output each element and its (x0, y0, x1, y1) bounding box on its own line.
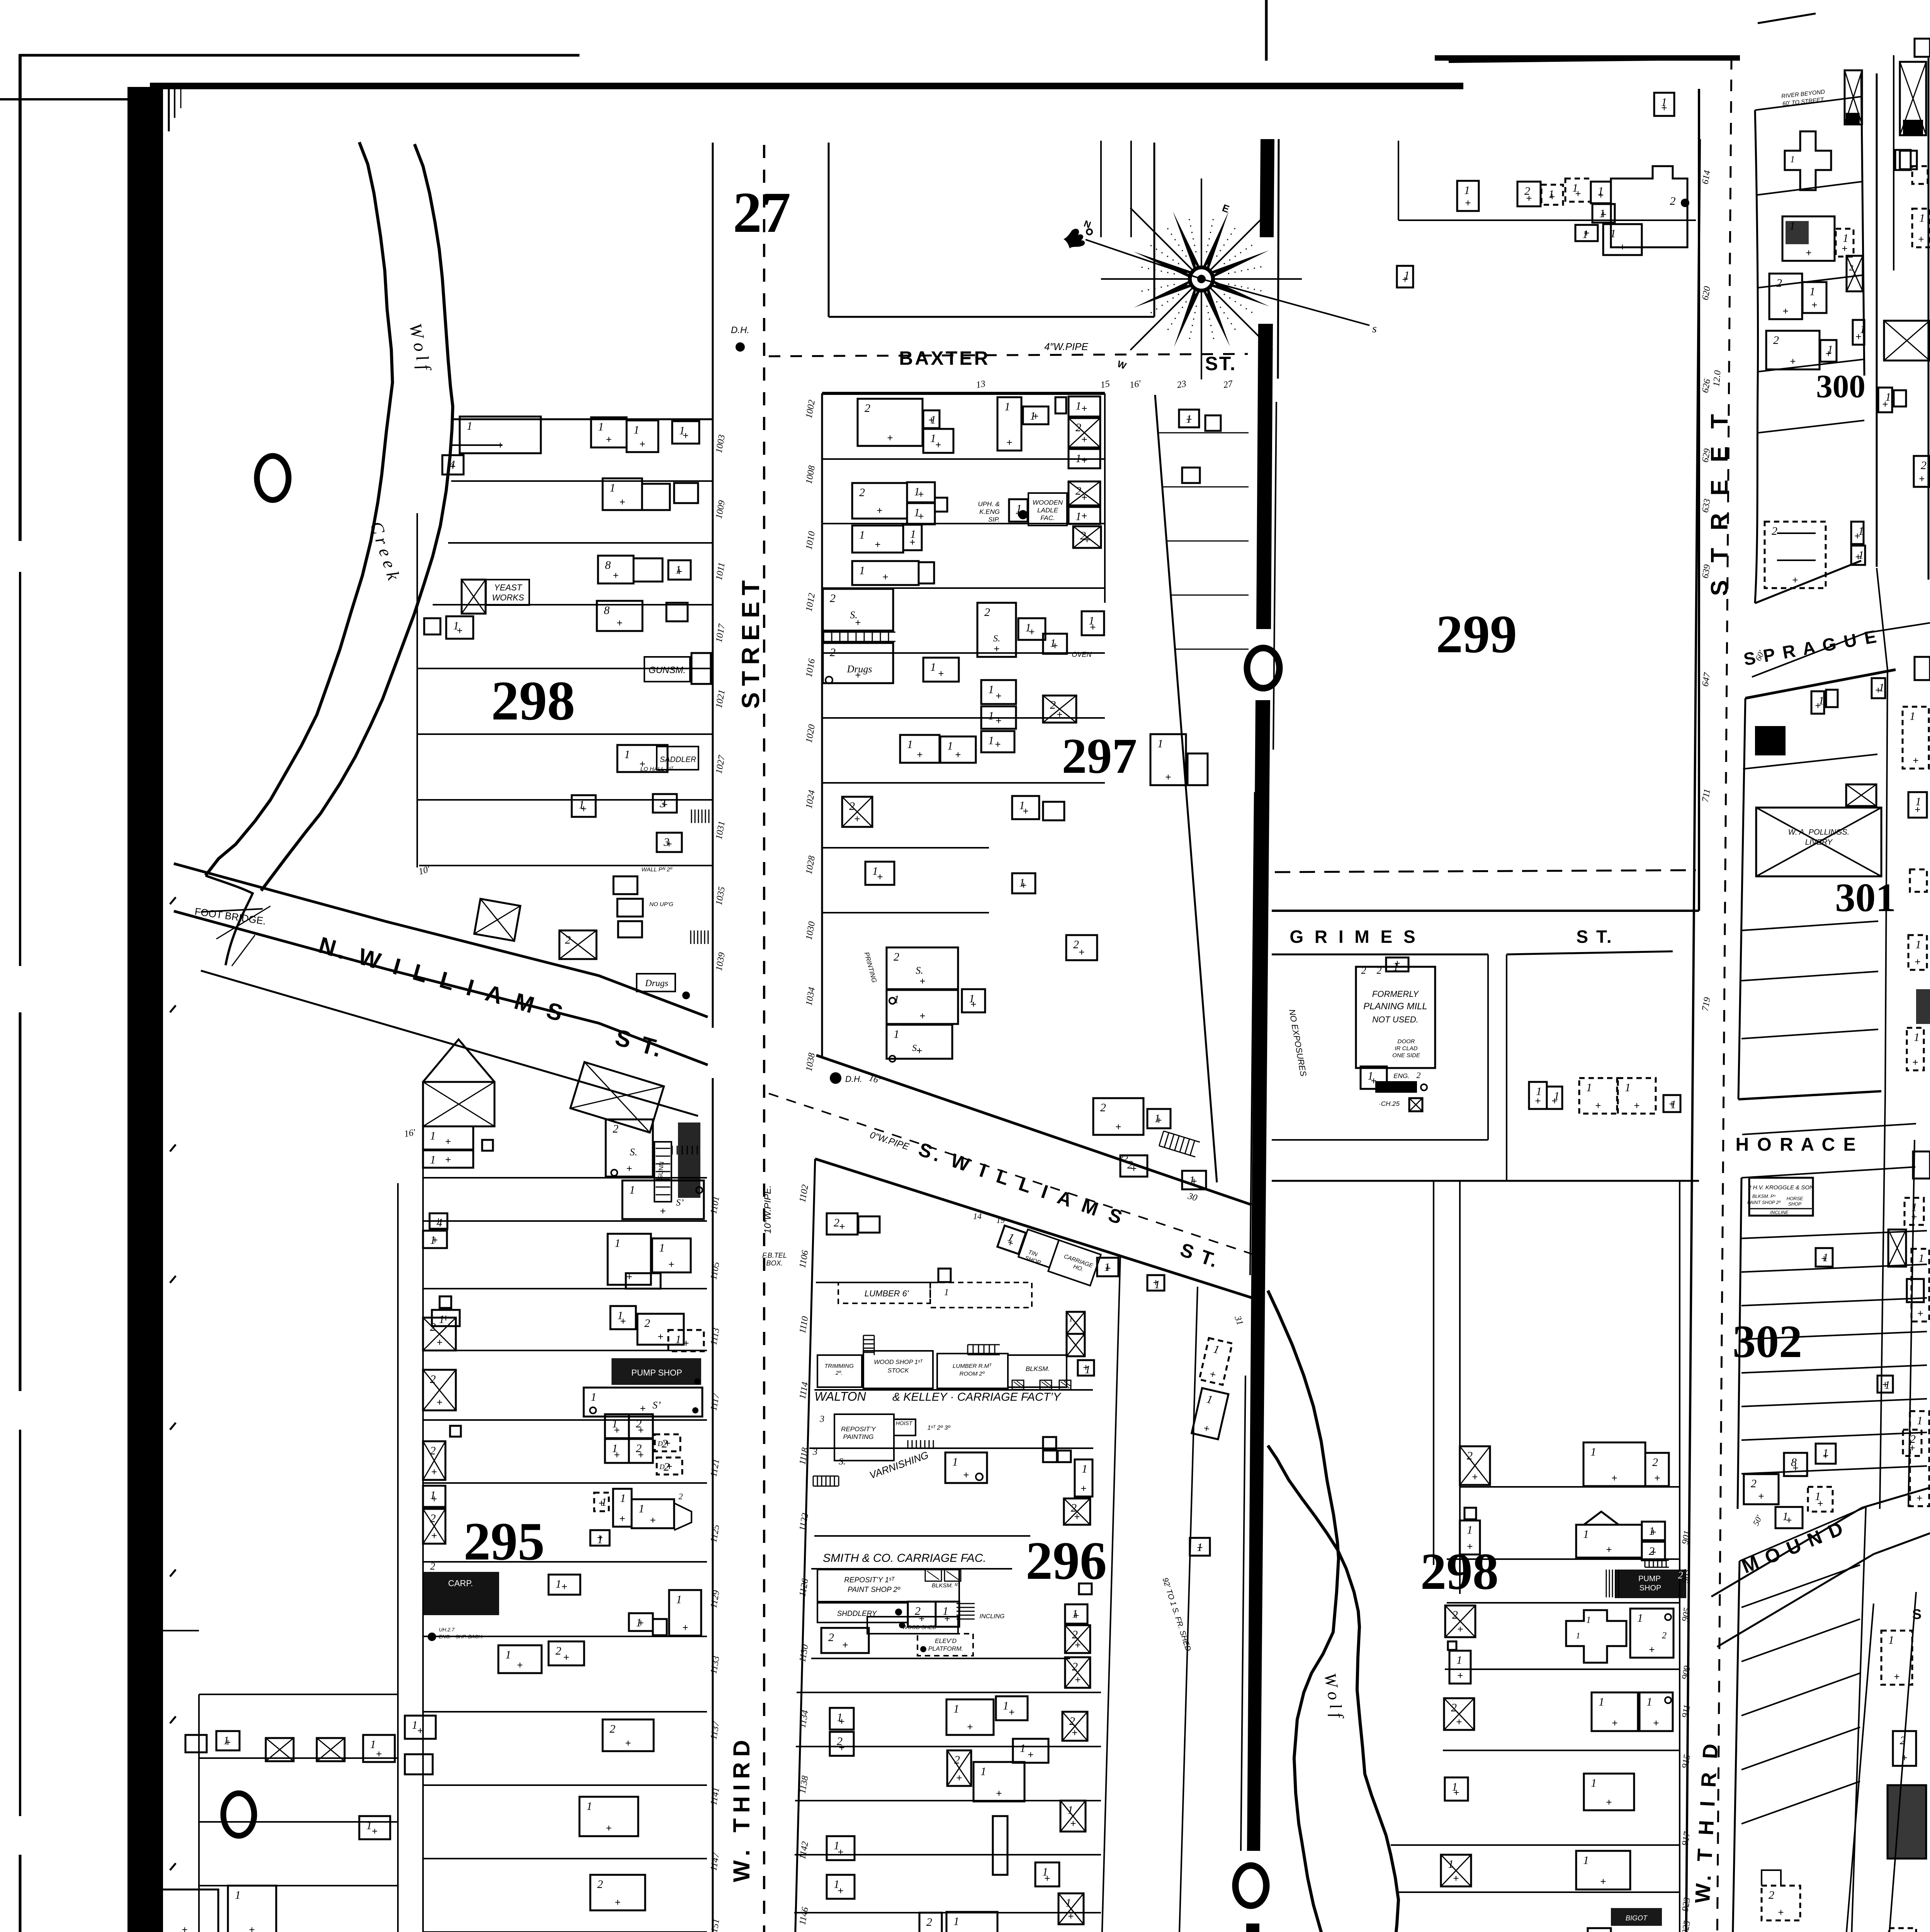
svg-text:15: 15 (1100, 379, 1111, 390)
svg-text:1: 1 (988, 683, 994, 696)
svg-text:+: + (662, 799, 668, 810)
svg-text:+: + (1600, 1876, 1606, 1887)
svg-text:+: + (1081, 403, 1087, 414)
svg-text:2: 2 (984, 606, 990, 619)
svg-text:S.: S. (916, 965, 923, 976)
svg-text:W. THIRD: W. THIRD (729, 1735, 754, 1882)
svg-text:1: 1 (1157, 737, 1163, 750)
svg-text:+: + (376, 1748, 382, 1760)
svg-text:1: 1 (1583, 1528, 1589, 1541)
svg-text:+: + (1197, 1542, 1203, 1553)
svg-text:2: 2 (1670, 195, 1676, 207)
svg-text:& KELLEY · CARRIAGE FACT’Y: & KELLEY · CARRIAGE FACT’Y (892, 1391, 1062, 1403)
svg-text:+: + (1619, 241, 1625, 253)
svg-text:2 H.V. KROGGLE & SON: 2 H.V. KROGGLE & SON (1748, 1184, 1814, 1191)
svg-text:+: + (614, 1449, 620, 1461)
svg-text:+: + (1855, 551, 1861, 563)
svg-text:+: + (1915, 956, 1920, 968)
svg-text:297: 297 (1062, 728, 1137, 784)
svg-text:1: 1 (1467, 1524, 1473, 1536)
svg-text:+: + (1465, 197, 1471, 209)
svg-text:+: + (1083, 1362, 1089, 1373)
svg-text:+: + (1535, 1095, 1541, 1107)
svg-text:1: 1 (1003, 1699, 1009, 1712)
svg-text:+: + (625, 1737, 631, 1749)
svg-text:+: + (1081, 510, 1087, 522)
svg-text:1: 1 (1914, 1031, 1920, 1044)
svg-text:+: + (1917, 1308, 1923, 1319)
svg-text:1: 1 (1590, 1446, 1596, 1458)
svg-text:1: 1 (1910, 710, 1915, 723)
svg-text:UPH. &: UPH. & (978, 500, 1000, 508)
svg-text:+: + (996, 1787, 1002, 1799)
svg-text:+: + (598, 1497, 604, 1509)
svg-text:+: + (639, 438, 645, 450)
svg-text:+: + (650, 1514, 656, 1526)
svg-text:2: 2 (1772, 525, 1777, 537)
svg-text:+: + (875, 539, 880, 550)
svg-text:2: 2 (1662, 1631, 1667, 1641)
svg-text:1: 1 (598, 420, 604, 433)
svg-text:1: 1 (1082, 1463, 1087, 1475)
svg-text:1: 1 (615, 1237, 620, 1250)
svg-text:3: 3 (812, 1447, 817, 1457)
svg-text:16': 16' (1129, 379, 1142, 391)
svg-text:WOOD SHOP 1ˢᵀ: WOOD SHOP 1ˢᵀ (874, 1359, 923, 1366)
svg-text:+: + (1156, 1114, 1162, 1126)
svg-text:K.ENG: K.ENG (979, 508, 1000, 515)
svg-text:+: + (638, 1617, 644, 1629)
svg-text:2: 2 (1069, 1715, 1075, 1728)
svg-text:+: + (1191, 1175, 1197, 1187)
svg-text:+: + (1901, 1752, 1907, 1764)
svg-text:REPOSIT’Y 1ˢᵀ: REPOSIT’Y 1ˢᵀ (844, 1576, 895, 1584)
svg-text:ROOM 2º: ROOM 2º (960, 1371, 985, 1377)
svg-text:S.: S. (993, 634, 1000, 644)
svg-text:2: 2 (430, 1373, 436, 1386)
svg-text:1: 1 (1020, 1742, 1026, 1755)
svg-text:1: 1 (1809, 285, 1815, 298)
svg-text:+: + (615, 1896, 620, 1908)
svg-text:+: + (839, 1221, 845, 1232)
svg-text:1: 1 (556, 1578, 561, 1590)
svg-text:+: + (1778, 1906, 1784, 1918)
svg-text:1: 1 (859, 564, 865, 577)
svg-text:2: 2 (828, 1631, 834, 1644)
svg-text:+: + (1072, 1727, 1077, 1738)
svg-text:+: + (1595, 1100, 1601, 1111)
svg-text:1ˢᵀ 2º 3º: 1ˢᵀ 2º 3º (928, 1425, 951, 1431)
svg-text:+: + (1402, 274, 1408, 285)
svg-text:12.0: 12.0 (1711, 370, 1723, 387)
svg-text:2: 2 (865, 402, 870, 415)
svg-text:2: 2 (1050, 699, 1056, 711)
svg-text:1: 1 (1586, 1081, 1592, 1094)
svg-text:BIGOT: BIGOT (1626, 1914, 1648, 1922)
svg-text:CARP.: CARP. (448, 1578, 473, 1588)
svg-text:+: + (919, 1613, 924, 1624)
svg-text:+: + (1815, 700, 1821, 711)
svg-text:UH.2.7: UH.2.7 (439, 1627, 455, 1633)
svg-text:1: 1 (676, 1593, 682, 1606)
svg-text:+: + (1131, 1163, 1137, 1174)
svg-text:2: 2 (830, 646, 836, 659)
svg-text:27: 27 (733, 180, 791, 245)
svg-text:+: + (935, 439, 941, 451)
svg-text:1: 1 (1464, 184, 1470, 197)
svg-text:YEAST: YEAST (494, 583, 523, 592)
svg-text:+: + (1467, 1541, 1473, 1552)
svg-text:LIVERY: LIVERY (1805, 838, 1833, 847)
svg-text:1: 1 (1065, 1896, 1071, 1909)
svg-text:1: 1 (930, 661, 936, 673)
svg-text:+: + (417, 1725, 423, 1736)
svg-text:8: 8 (604, 604, 610, 617)
svg-text:+: + (1842, 243, 1847, 254)
svg-text:1: 1 (1888, 1634, 1894, 1646)
svg-text:S T.: S T. (1576, 927, 1613, 947)
svg-text:W. A. POLLINGS.: W. A. POLLINGS. (1788, 828, 1850, 837)
svg-text:+: + (838, 1885, 843, 1896)
svg-text:+: + (1611, 1472, 1617, 1484)
svg-text:ONE SIDE: ONE SIDE (1392, 1052, 1420, 1059)
svg-text:OVEN: OVEN (1072, 651, 1092, 658)
svg-text:3: 3 (819, 1414, 824, 1424)
svg-text:13: 13 (975, 379, 986, 390)
svg-text:PAINT SHOP 2º: PAINT SHOP 2º (848, 1586, 900, 1594)
svg-text:HORSE: HORSE (1787, 1196, 1804, 1201)
svg-text:1: 1 (1915, 938, 1921, 951)
svg-text:+: + (938, 668, 944, 679)
svg-text:1: 1 (907, 738, 913, 751)
svg-text:BLKSM. ᴺᵀ: BLKSM. ᴺᵀ (932, 1582, 960, 1589)
svg-text:+: + (1782, 305, 1788, 317)
svg-text:2: 2 (859, 486, 865, 499)
svg-text:1: 1 (980, 1765, 986, 1778)
svg-text:1: 1 (1586, 1615, 1591, 1625)
svg-text:+: + (1081, 434, 1087, 445)
svg-text:ELEV’D: ELEV’D (935, 1638, 957, 1645)
svg-text:+: + (1526, 192, 1532, 204)
svg-text:2: 2 (430, 1321, 436, 1333)
svg-text:+: + (963, 1469, 969, 1481)
svg-text:+: + (1457, 1670, 1463, 1681)
svg-text:2: 2 (1652, 1456, 1658, 1469)
svg-text:+: + (619, 1513, 625, 1524)
svg-text:+: + (1606, 1796, 1612, 1808)
svg-text:1: 1 (1576, 1631, 1580, 1640)
svg-text:2: 2 (1776, 277, 1782, 289)
svg-text:LUMBER 6': LUMBER 6' (865, 1289, 909, 1298)
svg-text:G R I M E S: G R I M E S (1289, 927, 1418, 947)
svg-text:+: + (1186, 413, 1192, 425)
svg-text:+: + (561, 1581, 567, 1592)
svg-text:1: 1 (988, 734, 994, 747)
svg-text:+: + (1821, 1253, 1827, 1264)
svg-text:+: + (450, 461, 455, 472)
svg-text:+: + (445, 1136, 451, 1147)
svg-text:+: + (1073, 1610, 1079, 1621)
svg-text:1: 1 (505, 1648, 511, 1661)
svg-text:1: 1 (366, 1819, 372, 1832)
svg-text:+: + (917, 749, 923, 760)
svg-text:+: + (497, 439, 503, 451)
svg-text:PUMP: PUMP (1638, 1575, 1661, 1583)
svg-text:1: 1 (624, 748, 630, 761)
svg-text:2: 2 (1451, 1701, 1457, 1714)
svg-text:1: 1 (1004, 400, 1010, 413)
svg-text:+: + (1612, 1717, 1617, 1729)
svg-text:+: + (626, 1163, 632, 1174)
svg-text:+: + (1634, 1100, 1639, 1111)
svg-text:1: 1 (944, 1287, 949, 1298)
svg-text:S’: S’ (676, 1198, 684, 1208)
svg-text:14: 14 (973, 1211, 982, 1221)
svg-text:+: + (640, 1403, 646, 1414)
svg-text:+: + (1650, 1546, 1656, 1558)
svg-text:FAC.: FAC. (1040, 514, 1055, 522)
svg-text:+: + (1394, 957, 1400, 969)
svg-text:2: 2 (430, 1512, 436, 1525)
svg-text:1: 1 (675, 1333, 681, 1346)
svg-text:1: 1 (1625, 1081, 1631, 1094)
svg-text:296: 296 (1026, 1531, 1107, 1591)
svg-text:1: 1 (1456, 1654, 1462, 1667)
svg-text:+: + (1894, 1671, 1899, 1682)
svg-text:+: + (1044, 1872, 1050, 1884)
svg-text:+: + (1009, 1706, 1014, 1718)
svg-text:SMITH & CO. CARRIAGE FAC.: SMITH & CO. CARRIAGE FAC. (823, 1552, 986, 1565)
svg-text:+: + (1825, 348, 1831, 359)
svg-text:+: + (970, 998, 976, 1010)
svg-text:2: 2 (1073, 938, 1079, 951)
svg-text:+: + (638, 1424, 644, 1436)
svg-text:+: + (1070, 1818, 1076, 1829)
svg-text:+: + (842, 1639, 848, 1651)
svg-text:2: 2 (613, 1122, 618, 1135)
svg-text:+: + (919, 975, 925, 987)
svg-text:LADLE: LADLE (1037, 507, 1058, 514)
svg-text:D.H.: D.H. (845, 1074, 862, 1084)
svg-text:1: 1 (859, 529, 865, 541)
svg-text:+: + (457, 625, 462, 636)
svg-text:+: + (918, 510, 924, 522)
svg-text:WOOD SHED: WOOD SHED (902, 1624, 936, 1630)
svg-text:+: + (1882, 1379, 1888, 1390)
svg-text:·CH.25: ·CH.25 (1379, 1100, 1400, 1107)
svg-text:STOCK: STOCK (888, 1367, 909, 1374)
svg-text:2: 2 (1849, 263, 1854, 272)
svg-text:+: + (1790, 355, 1796, 367)
svg-text:1: 1 (1610, 227, 1616, 240)
svg-text:1: 1 (1448, 1858, 1454, 1871)
svg-text:+: + (563, 1651, 569, 1663)
svg-text:1: 1 (953, 1915, 959, 1928)
svg-text:+: + (1033, 410, 1038, 422)
svg-text:1: 1 (1646, 1696, 1652, 1708)
svg-text:D.: D. (659, 1463, 666, 1471)
svg-text:1: 1 (947, 740, 953, 752)
svg-text:1: 1 (1069, 1315, 1073, 1323)
svg-text:+: + (1057, 709, 1062, 720)
svg-text:+: + (838, 1846, 843, 1858)
svg-text:BAXTER: BAXTER (899, 347, 990, 369)
svg-text:2: 2 (597, 1878, 603, 1891)
svg-text:2: 2 (565, 934, 571, 946)
svg-text:+: + (1823, 1450, 1828, 1461)
svg-text:WOODEN: WOODEN (1033, 499, 1063, 506)
svg-text:+: + (1606, 1544, 1612, 1555)
svg-text:299: 299 (1436, 604, 1517, 664)
svg-text:+: + (1075, 1639, 1081, 1651)
svg-text:1: 1 (1919, 212, 1925, 224)
svg-text:+: + (996, 690, 1001, 702)
svg-text:S’: S’ (652, 1400, 661, 1411)
svg-text:+: + (431, 1466, 437, 1478)
svg-text:+: + (619, 496, 625, 508)
svg-text:+: + (877, 505, 882, 516)
svg-text:SHOP: SHOP (1639, 1584, 1662, 1592)
svg-text:2: 2 (1361, 965, 1366, 976)
svg-text:1: 1 (158, 1893, 163, 1905)
svg-text:LUMBER R.Mᵀ: LUMBER R.Mᵀ (953, 1363, 992, 1369)
svg-text:+: + (1918, 233, 1924, 245)
svg-text:1: 1 (1790, 155, 1795, 165)
svg-text:+: + (909, 536, 915, 548)
svg-text:8: 8 (605, 559, 611, 571)
svg-text:1: 1 (894, 1028, 899, 1041)
svg-text:GUNSM.: GUNSM. (649, 665, 686, 675)
svg-text:+: + (1029, 626, 1035, 638)
svg-text:+: + (1654, 1472, 1660, 1484)
svg-text:2: 2 (1921, 459, 1927, 472)
svg-text:+: + (1786, 1514, 1792, 1526)
svg-text:F.B.TEL: F.B.TEL (762, 1252, 787, 1259)
svg-text:+: + (617, 617, 622, 629)
svg-text:2: 2 (926, 1916, 932, 1929)
svg-text:+: + (1913, 755, 1918, 766)
svg-text:+: + (1650, 1526, 1656, 1538)
svg-text:+: + (225, 1736, 231, 1748)
svg-text:2: 2 (1900, 1734, 1906, 1747)
svg-text:2: 2 (1072, 1660, 1078, 1673)
svg-text:+: + (1153, 1277, 1159, 1288)
svg-text:+: + (928, 414, 934, 426)
svg-text:1: 1 (1599, 1696, 1604, 1708)
svg-text:+: + (967, 1721, 973, 1733)
svg-text:+: + (668, 1259, 674, 1270)
svg-text:+: + (1028, 1749, 1033, 1760)
svg-text:+: + (657, 1331, 663, 1342)
svg-text:1: 1 (659, 1242, 665, 1254)
svg-text:S: S (1912, 1606, 1922, 1622)
svg-text:+: + (581, 803, 586, 815)
svg-text:+: + (249, 1924, 255, 1932)
svg-text:1: 1 (1075, 510, 1081, 523)
svg-text:WALL Pᴺ 2º: WALL Pᴺ 2º (641, 866, 673, 873)
svg-text:+: + (1081, 1483, 1086, 1494)
svg-text:1: 1 (1075, 452, 1081, 465)
svg-text:2: 2 (679, 1492, 683, 1501)
svg-text:+: + (1052, 640, 1058, 651)
svg-text:+: + (1916, 1492, 1922, 1504)
svg-text:NO UP'G: NO UP'G (649, 901, 673, 908)
svg-text:1: 1 (467, 420, 472, 432)
svg-text:+: + (432, 1234, 438, 1246)
svg-text:+: + (1023, 805, 1028, 817)
svg-text:+: + (431, 1493, 437, 1505)
svg-text:+: + (614, 1424, 620, 1436)
svg-text:S.: S. (630, 1146, 637, 1158)
svg-text:+: + (1105, 1262, 1111, 1274)
svg-text:+: + (606, 1822, 612, 1834)
svg-text:1: 1 (988, 709, 994, 722)
svg-text:+: + (1549, 191, 1555, 202)
svg-text:+: + (1551, 1095, 1557, 1107)
svg-text:+: + (1456, 1716, 1462, 1728)
svg-text:1: 1 (1918, 1252, 1924, 1265)
svg-text:2: 2 (954, 1753, 960, 1766)
svg-text:SADDLER: SADDLER (660, 755, 696, 764)
svg-text:+: + (435, 1215, 441, 1226)
svg-text:+: + (613, 570, 618, 581)
svg-text:INCLING: INCLING (980, 1613, 1005, 1620)
svg-text:FORMERLY: FORMERLY (1372, 989, 1419, 999)
svg-text:D’: D’ (657, 1440, 665, 1447)
svg-text:+: + (517, 1659, 523, 1671)
svg-text:2: 2 (644, 1317, 650, 1330)
svg-text:+: + (919, 1010, 925, 1022)
svg-text:S.: S. (912, 1043, 919, 1053)
svg-text:1: 1 (1917, 1414, 1923, 1427)
svg-text:2: 2 (1075, 421, 1081, 434)
svg-text:PAINT SHOP 2º: PAINT SHOP 2º (1747, 1200, 1780, 1205)
svg-text:1: 1 (953, 1702, 959, 1715)
svg-text:BOX.: BOX. (766, 1259, 783, 1267)
svg-text:ST.: ST. (1205, 353, 1236, 374)
svg-text:PUMP SHOP: PUMP SHOP (631, 1368, 682, 1378)
svg-text:+: + (1758, 1490, 1764, 1502)
svg-text:16': 16' (403, 1128, 416, 1139)
svg-text:2: 2 (1773, 334, 1779, 347)
svg-text:+: + (995, 738, 1001, 750)
svg-text:1: 1 (591, 1391, 596, 1403)
svg-text:+: + (944, 1613, 950, 1624)
svg-text:2: 2 (1769, 1889, 1774, 1901)
svg-text:SHOP: SHOP (1788, 1201, 1801, 1207)
svg-text:1: 1 (620, 1492, 626, 1505)
svg-text:+: + (1669, 1098, 1675, 1110)
svg-text:+: + (1649, 1644, 1655, 1655)
svg-text:+: + (1912, 1056, 1918, 1068)
svg-text:+: + (372, 1825, 377, 1837)
svg-text:HOIST: HOIST (896, 1420, 913, 1426)
svg-text:300: 300 (1816, 368, 1865, 405)
svg-text:+: + (1817, 1498, 1823, 1509)
svg-text:+: + (620, 1315, 626, 1327)
svg-text:+: + (1653, 1717, 1659, 1729)
svg-text:+: + (839, 1742, 844, 1753)
svg-text:+: + (956, 1772, 962, 1784)
svg-text:H O R A C E: H O R A C E (1735, 1134, 1857, 1155)
svg-text:+: + (839, 1716, 844, 1727)
svg-text:2: 2 (834, 1216, 839, 1229)
svg-text:+: + (664, 1437, 670, 1449)
svg-text:4″W.PIPE: 4″W.PIPE (1044, 341, 1088, 352)
svg-text:2: 2 (1751, 1477, 1757, 1490)
svg-text:1: 1 (1637, 1612, 1643, 1624)
svg-text:+: + (1811, 299, 1817, 311)
